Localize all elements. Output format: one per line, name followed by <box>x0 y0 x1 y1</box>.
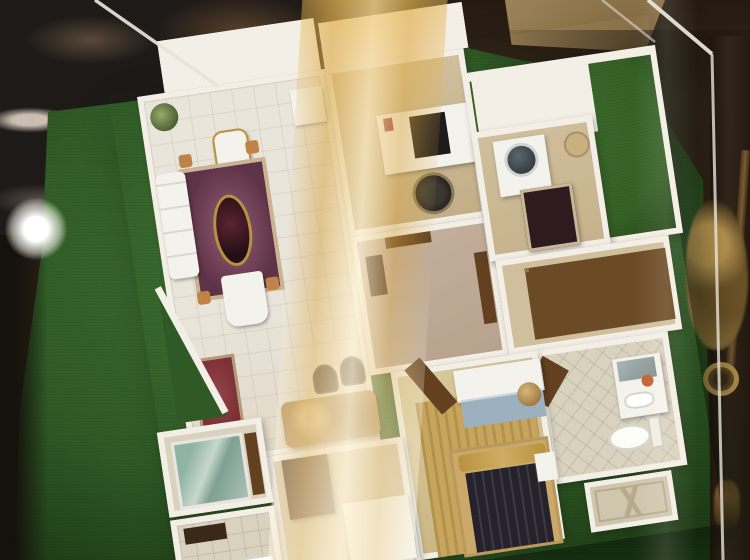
photo-architectural-model <box>0 0 750 560</box>
glass-case-edges <box>0 0 750 560</box>
case-right-edge <box>712 54 723 560</box>
case-support-edge <box>602 0 655 42</box>
case-corner-edge <box>95 0 218 86</box>
case-right-edge-top <box>648 0 712 54</box>
